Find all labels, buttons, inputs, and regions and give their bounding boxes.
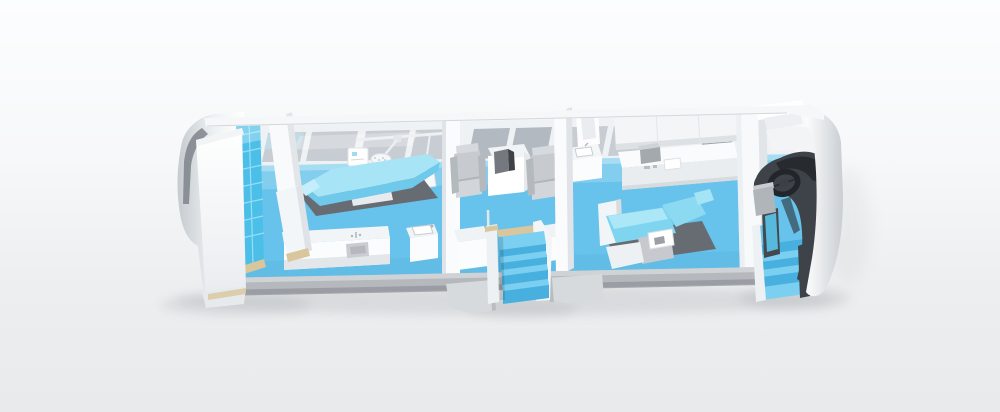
cab-monitor-screen <box>765 213 778 252</box>
counter-sink-basin <box>350 246 366 255</box>
sink-cabinet-front <box>410 234 438 262</box>
light-lamp <box>378 159 380 161</box>
corner-sink-front <box>572 156 602 182</box>
table-console <box>494 149 509 174</box>
counter-label <box>653 165 657 168</box>
entry-skirt-right <box>548 274 604 303</box>
light-lamp <box>374 157 376 159</box>
counter-tray <box>664 158 681 170</box>
sink-cabinet-basin <box>412 225 433 235</box>
counter-knob <box>359 234 361 236</box>
counter-label <box>644 166 650 169</box>
sink-faucet <box>431 225 434 228</box>
wall-a <box>442 112 460 286</box>
counter-knob <box>351 235 353 237</box>
counter-equipment <box>640 147 661 164</box>
entry-steps <box>485 220 552 304</box>
storage-block-left <box>458 238 488 270</box>
wall-b <box>554 107 574 278</box>
equipment-cart <box>348 148 368 166</box>
mobile-clinic-cutaway <box>0 0 1000 412</box>
stairwell-wall-left <box>486 224 499 304</box>
driver-console <box>753 186 776 216</box>
entry-skirt-left <box>446 280 494 313</box>
light-lamp <box>382 157 384 159</box>
table-console-side <box>508 149 515 171</box>
corner-sink-basin <box>575 147 593 157</box>
corner-frame-inset <box>581 116 596 140</box>
equipment-cart-display <box>352 152 357 156</box>
treatment-far-wall <box>568 106 750 190</box>
